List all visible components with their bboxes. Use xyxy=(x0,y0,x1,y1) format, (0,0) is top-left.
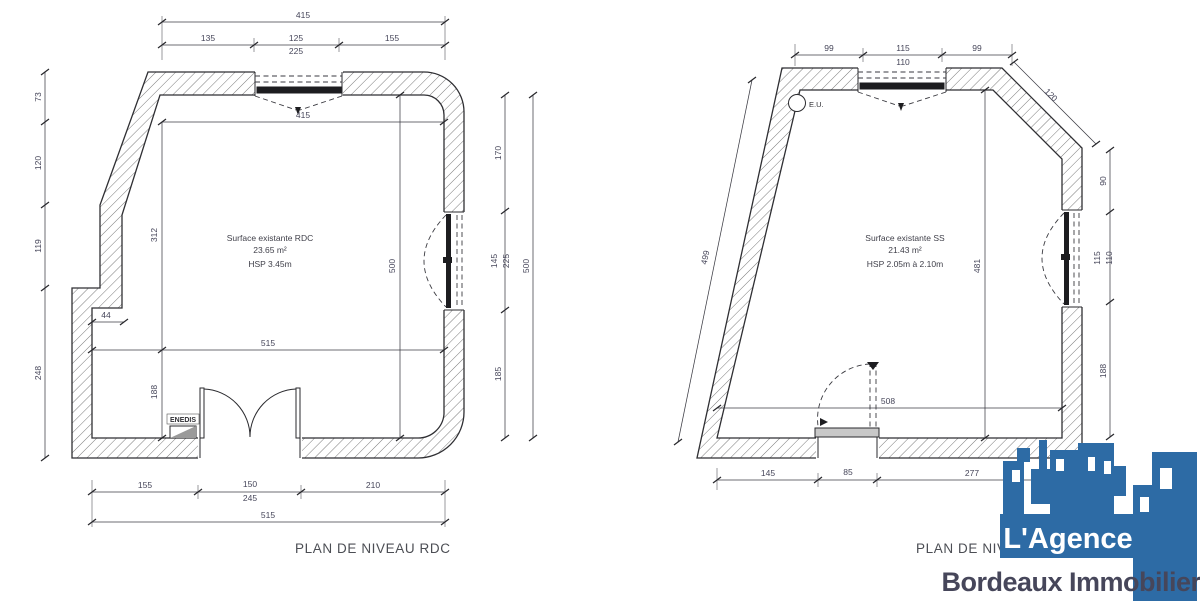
dim-label-rdc-bottom-515: 515 xyxy=(261,510,275,520)
dim-label-rdc-right-500: 500 xyxy=(521,259,531,273)
ss-room-line3: HSP 2.05m à 2.10m xyxy=(867,259,943,269)
rdc-enedis-label: ENEDIS xyxy=(170,417,196,424)
dim-label-rdc-bottom-245: 245 xyxy=(243,493,257,503)
dim-label-rdc-bottom-150: 150 xyxy=(243,479,257,489)
dim-label-ss-right-90: 90 xyxy=(1098,176,1108,186)
rdc-entry-door-icon xyxy=(198,388,302,460)
dim-label-rdc-in-188: 188 xyxy=(149,385,159,399)
dim-label-ss-top-99b: 99 xyxy=(972,43,982,53)
dim-label-rdc-left-120: 120 xyxy=(33,156,43,170)
dim-label-ss-right-110: 110 xyxy=(1104,251,1114,265)
rdc-right-window-icon xyxy=(424,212,466,310)
dim-label-ss-bottom-85: 85 xyxy=(843,467,853,477)
ss-room-line2: 21.43 m² xyxy=(888,245,922,255)
ss-right-window-icon xyxy=(1042,210,1084,307)
ss-bottom-door-icon xyxy=(815,362,879,460)
dim-label-rdc-left-73: 73 xyxy=(33,92,43,102)
agency-logo: L'Agence Bordeaux Immobilier xyxy=(941,440,1200,601)
logo-agency-subtitle: Bordeaux Immobilier xyxy=(941,567,1200,597)
ss-eu-label: E.U. xyxy=(809,100,824,109)
floor-plan-page: ENEDIS 415 312 188 500 515 44 xyxy=(0,0,1200,601)
dim-label-rdc-top-125: 125 xyxy=(289,33,303,43)
dim-label-ss-top-110: 110 xyxy=(896,57,910,67)
dim-label-rdc-right-170: 170 xyxy=(493,146,503,160)
ss-room-line1: Surface existante SS xyxy=(865,233,945,243)
ss-top-window-icon xyxy=(858,66,946,111)
logo-agency-name: L'Agence xyxy=(1003,523,1132,555)
dim-label-ss-right-115: 115 xyxy=(1092,251,1102,265)
dim-label-ss-right-188: 188 xyxy=(1098,364,1108,378)
dim-label-rdc-top-225: 225 xyxy=(289,46,303,56)
dim-label-rdc-right-145: 145 xyxy=(489,254,499,268)
dim-label-rdc-in-415: 415 xyxy=(296,110,310,120)
dim-label-rdc-left-119: 119 xyxy=(33,239,43,253)
dim-label-ss-left-499: 499 xyxy=(699,249,712,265)
dim-label-ss-bottom-145: 145 xyxy=(761,468,775,478)
rdc-room-label: Surface existante RDC 23.65 m² HSP 3.45m xyxy=(227,233,313,269)
ss-room-label: Surface existante SS 21.43 m² HSP 2.05m … xyxy=(865,233,945,269)
rdc-room-line3: HSP 3.45m xyxy=(248,259,291,269)
dim-label-ss-top-99a: 99 xyxy=(824,43,834,53)
rdc-top-window-icon xyxy=(255,70,343,115)
dim-label-ss-top-115: 115 xyxy=(896,43,910,53)
rdc-room-line1: Surface existante RDC xyxy=(227,233,313,243)
rdc-top-dimensions: 415 135 125 225 155 xyxy=(158,10,449,60)
dim-label-rdc-in-312: 312 xyxy=(149,228,159,242)
ss-top-dimensions: 99 115 110 99 xyxy=(791,43,1016,67)
dim-label-rdc-in-515: 515 xyxy=(261,338,275,348)
dim-label-ss-in-481: 481 xyxy=(972,259,982,273)
rdc-right-dimensions: 170 145 225 185 500 xyxy=(489,92,537,441)
rdc-left-dimensions: 73 120 119 248 xyxy=(33,69,49,461)
dim-label-rdc-in-500: 500 xyxy=(387,259,397,273)
rdc-enedis-meter-icon: ENEDIS xyxy=(167,414,199,438)
dim-label-rdc-top-155: 155 xyxy=(385,33,399,43)
dim-label-ss-right-120: 120 xyxy=(1043,86,1060,103)
rdc-plan-title: PLAN DE NIVEAU RDC xyxy=(295,541,451,556)
rdc-plan: ENEDIS 415 312 188 500 515 44 xyxy=(33,10,537,556)
dim-label-rdc-right-185: 185 xyxy=(493,367,503,381)
ss-eu-drain-icon: E.U. xyxy=(789,95,824,112)
floor-plan-drawing: ENEDIS 415 312 188 500 515 44 xyxy=(0,0,1200,601)
dim-label-ss-in-508: 508 xyxy=(881,396,895,406)
dim-label-ss-bottom-277: 277 xyxy=(965,468,979,478)
dim-label-rdc-bottom-155: 155 xyxy=(138,480,152,490)
rdc-room-line2: 23.65 m² xyxy=(253,245,287,255)
dim-label-rdc-in-44: 44 xyxy=(101,310,111,320)
dim-label-rdc-left-248: 248 xyxy=(33,366,43,380)
dim-label-rdc-right-225: 225 xyxy=(501,254,511,268)
rdc-bottom-dimensions: 155 150 245 210 515 xyxy=(88,479,449,527)
dim-label-rdc-top-135: 135 xyxy=(201,33,215,43)
dim-label-rdc-bottom-210: 210 xyxy=(366,480,380,490)
dim-label-rdc-top-total: 415 xyxy=(296,10,310,20)
